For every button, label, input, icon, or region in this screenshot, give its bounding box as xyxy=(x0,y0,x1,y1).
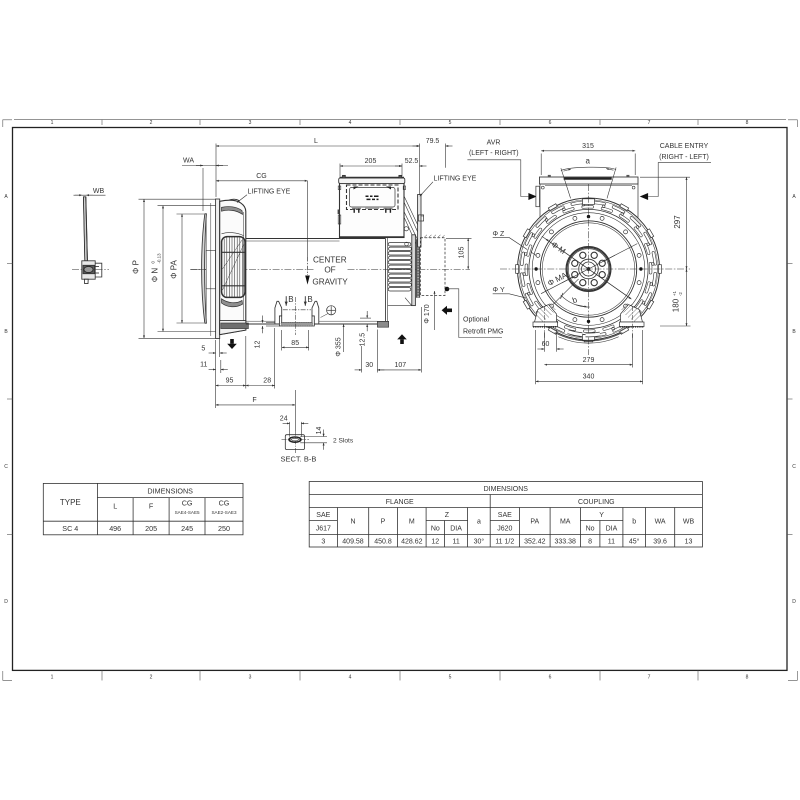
svg-text:Φ N: Φ N xyxy=(151,268,160,283)
svg-text:a: a xyxy=(477,519,481,526)
svg-text:2: 2 xyxy=(150,674,153,680)
svg-text:B: B xyxy=(288,295,293,304)
svg-text:297: 297 xyxy=(673,215,682,229)
svg-text:11 1/2: 11 1/2 xyxy=(495,539,514,546)
svg-text:C: C xyxy=(4,464,8,470)
svg-text:105: 105 xyxy=(459,247,466,259)
svg-text:DIMENSIONS: DIMENSIONS xyxy=(484,486,529,493)
svg-text:450.8: 450.8 xyxy=(374,539,392,546)
svg-text:205: 205 xyxy=(365,158,377,165)
svg-text:Φ Z: Φ Z xyxy=(493,231,506,238)
svg-text:CG: CG xyxy=(256,173,267,180)
svg-text:DIA: DIA xyxy=(450,526,462,533)
svg-text:45°: 45° xyxy=(629,538,640,546)
svg-text:A: A xyxy=(792,194,796,200)
svg-text:180: 180 xyxy=(672,298,681,312)
svg-text:SAE: SAE xyxy=(498,512,512,519)
svg-text:B: B xyxy=(792,329,796,335)
svg-text:D: D xyxy=(4,599,8,605)
svg-text:3: 3 xyxy=(249,674,252,680)
svg-text:5: 5 xyxy=(449,120,452,126)
svg-text:39.6: 39.6 xyxy=(653,539,667,546)
svg-text:AVR: AVR xyxy=(487,140,501,147)
svg-text:F: F xyxy=(149,501,154,510)
svg-text:12: 12 xyxy=(431,539,439,546)
svg-text:a: a xyxy=(585,156,590,165)
svg-text:No: No xyxy=(586,526,595,533)
svg-text:(LEFT - RIGHT): (LEFT - RIGHT) xyxy=(469,150,519,157)
svg-text:LIFTING EYE: LIFTING EYE xyxy=(434,176,477,183)
svg-text:PA: PA xyxy=(530,519,539,526)
svg-text:No: No xyxy=(431,526,440,533)
svg-text:107: 107 xyxy=(394,362,406,369)
svg-text:333.38: 333.38 xyxy=(554,539,576,546)
svg-text:245: 245 xyxy=(181,524,193,533)
svg-text:SECT. B-B: SECT. B-B xyxy=(281,454,317,463)
svg-text:85: 85 xyxy=(291,340,299,347)
svg-text:496: 496 xyxy=(109,524,121,533)
svg-text:Φ P: Φ P xyxy=(132,260,141,274)
svg-text:14: 14 xyxy=(316,427,323,435)
svg-text:CG: CG xyxy=(182,499,193,508)
svg-text:+1: +1 xyxy=(672,291,677,297)
svg-text:28: 28 xyxy=(263,378,271,385)
svg-text:4: 4 xyxy=(349,674,352,680)
svg-text:(RIGHT - LEFT): (RIGHT - LEFT) xyxy=(659,154,709,161)
svg-text:DIMENSIONS: DIMENSIONS xyxy=(147,486,193,495)
svg-text:J617: J617 xyxy=(316,526,331,533)
svg-text:WB: WB xyxy=(683,519,695,526)
svg-text:6: 6 xyxy=(549,120,552,126)
svg-text:C: C xyxy=(792,464,796,470)
svg-text:5: 5 xyxy=(449,674,452,680)
svg-text:340: 340 xyxy=(583,374,595,381)
svg-text:3: 3 xyxy=(321,539,325,546)
svg-text:8: 8 xyxy=(746,674,749,680)
svg-text:2 Slots: 2 Slots xyxy=(333,438,354,445)
svg-text:Φ M: Φ M xyxy=(550,240,568,256)
svg-text:D: D xyxy=(792,599,796,605)
svg-text:60: 60 xyxy=(542,341,550,348)
svg-text:428.62: 428.62 xyxy=(401,539,423,546)
svg-text:250: 250 xyxy=(218,524,230,533)
svg-text:J620: J620 xyxy=(497,526,512,533)
svg-text:352.42: 352.42 xyxy=(524,539,546,546)
svg-text:CABLE ENTRY: CABLE ENTRY xyxy=(660,143,709,150)
svg-text:205: 205 xyxy=(145,524,157,533)
svg-text:Φ Y: Φ Y xyxy=(493,287,506,294)
svg-text:5: 5 xyxy=(201,345,205,352)
svg-text:11: 11 xyxy=(200,362,207,369)
svg-text:SAE: SAE xyxy=(316,512,330,519)
svg-text:WA: WA xyxy=(655,519,666,526)
svg-text:WB: WB xyxy=(93,188,105,195)
svg-text:8: 8 xyxy=(588,539,592,546)
svg-text:7: 7 xyxy=(648,674,651,680)
svg-text:CG: CG xyxy=(219,499,230,508)
svg-text:315: 315 xyxy=(582,143,594,150)
svg-text:TYPE: TYPE xyxy=(60,498,81,507)
svg-text:95: 95 xyxy=(226,378,234,385)
svg-text:52.5: 52.5 xyxy=(405,158,419,165)
svg-text:0: 0 xyxy=(150,261,155,264)
svg-text:SC 4: SC 4 xyxy=(62,524,78,533)
svg-text:N: N xyxy=(350,519,355,526)
svg-text:12.5: 12.5 xyxy=(359,333,366,347)
svg-text:79.5: 79.5 xyxy=(426,138,440,145)
svg-text:279: 279 xyxy=(583,357,595,364)
svg-text:F: F xyxy=(252,397,256,404)
svg-text:MA: MA xyxy=(560,519,571,526)
svg-text:A: A xyxy=(4,194,8,200)
svg-text:7: 7 xyxy=(648,120,651,126)
svg-text:Retrofit PMG: Retrofit PMG xyxy=(463,329,503,336)
svg-text:L: L xyxy=(113,501,117,510)
svg-text:11: 11 xyxy=(608,539,615,546)
svg-text:-2: -2 xyxy=(678,292,683,296)
svg-text:30: 30 xyxy=(365,362,373,369)
svg-text:12: 12 xyxy=(255,341,262,349)
svg-text:OF: OF xyxy=(324,265,335,274)
svg-text:B: B xyxy=(4,329,8,335)
svg-text:3: 3 xyxy=(249,120,252,126)
svg-text:2: 2 xyxy=(150,120,153,126)
svg-text:Φ PA: Φ PA xyxy=(169,259,178,278)
svg-text:13: 13 xyxy=(685,539,693,546)
svg-text:Φ 355: Φ 355 xyxy=(336,337,343,356)
svg-text:FLANGE: FLANGE xyxy=(386,499,414,506)
svg-text:L: L xyxy=(314,138,318,145)
svg-text:8: 8 xyxy=(746,120,749,126)
svg-text:Φ 170: Φ 170 xyxy=(424,304,431,323)
svg-text:6: 6 xyxy=(549,674,552,680)
svg-text:409.58: 409.58 xyxy=(342,539,364,546)
svg-text:GRAVITY: GRAVITY xyxy=(312,277,348,286)
svg-text:4: 4 xyxy=(349,120,352,126)
svg-text:Optional: Optional xyxy=(463,317,490,324)
svg-text:Z: Z xyxy=(445,512,450,519)
svg-text:LIFTING EYE: LIFTING EYE xyxy=(248,189,291,196)
svg-text:30°: 30° xyxy=(474,538,485,546)
svg-text:COUPLING: COUPLING xyxy=(578,499,615,506)
svg-text:SAE4-SAE5: SAE4-SAE5 xyxy=(175,510,200,515)
svg-text:WA: WA xyxy=(183,158,194,165)
svg-text:1: 1 xyxy=(51,120,54,126)
svg-text:CENTER: CENTER xyxy=(313,255,347,264)
svg-text:M: M xyxy=(409,519,415,526)
svg-text:b: b xyxy=(632,519,636,526)
svg-text:P: P xyxy=(381,519,386,526)
svg-text:24: 24 xyxy=(280,416,288,423)
svg-text:-0.13: -0.13 xyxy=(156,253,161,264)
svg-text:DIA: DIA xyxy=(606,526,618,533)
svg-text:Y: Y xyxy=(599,512,604,519)
svg-text:SAE2-SAE3: SAE2-SAE3 xyxy=(211,510,236,515)
svg-text:11: 11 xyxy=(452,539,459,546)
svg-text:1: 1 xyxy=(51,674,54,680)
svg-text:B: B xyxy=(307,295,312,304)
